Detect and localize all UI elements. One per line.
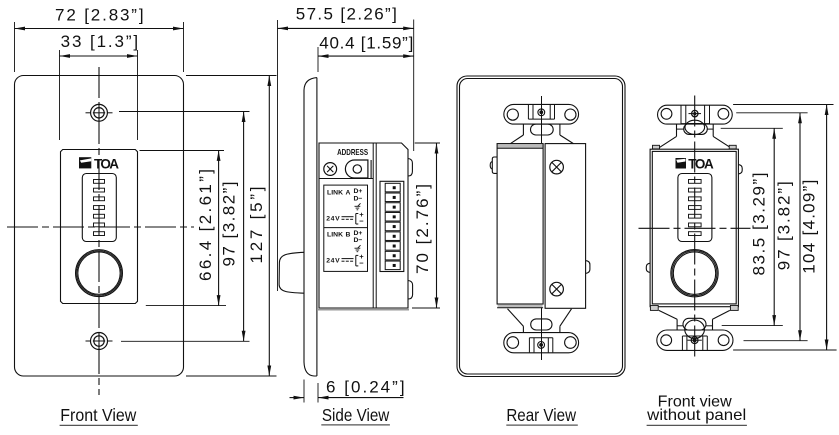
- svg-text:83.5 [3.29”]: 83.5 [3.29”]: [750, 173, 769, 276]
- svg-text:TOA: TOA: [94, 156, 119, 171]
- svg-text:A: A: [346, 190, 351, 197]
- svg-text:B: B: [346, 232, 351, 239]
- svg-text:127 [5”]: 127 [5”]: [247, 187, 266, 264]
- svg-text:TOA: TOA: [688, 157, 714, 172]
- svg-text:24V: 24V: [326, 257, 340, 264]
- svg-text:Front View: Front View: [60, 405, 136, 425]
- svg-text:LINK: LINK: [327, 232, 343, 239]
- svg-text:6 [0.24”]: 6 [0.24”]: [326, 377, 405, 396]
- svg-text:−: −: [359, 259, 364, 268]
- svg-text:D−: D−: [354, 237, 363, 244]
- svg-text:D−: D−: [354, 195, 363, 202]
- svg-text:D+: D+: [354, 188, 363, 195]
- svg-text:40.4 [1.59”]: 40.4 [1.59”]: [319, 33, 413, 52]
- svg-text:Rear View: Rear View: [506, 405, 576, 425]
- svg-text:Side View: Side View: [322, 405, 390, 425]
- svg-text:97 [3.82”]: 97 [3.82”]: [219, 182, 238, 267]
- svg-text:57.5 [2.26”]: 57.5 [2.26”]: [296, 4, 397, 23]
- svg-text:−: −: [359, 217, 364, 226]
- svg-text:LINK: LINK: [327, 190, 343, 197]
- svg-text:ADDRESS: ADDRESS: [337, 147, 368, 157]
- svg-text:104 [4.09”]: 104 [4.09”]: [799, 180, 818, 274]
- svg-text:24V: 24V: [326, 216, 340, 223]
- svg-text:33 [1.3”]: 33 [1.3”]: [61, 32, 138, 51]
- svg-text:without panel: without panel: [646, 407, 746, 424]
- svg-text:D+: D+: [354, 230, 363, 237]
- svg-text:66.4 [2.61”]: 66.4 [2.61”]: [196, 169, 215, 281]
